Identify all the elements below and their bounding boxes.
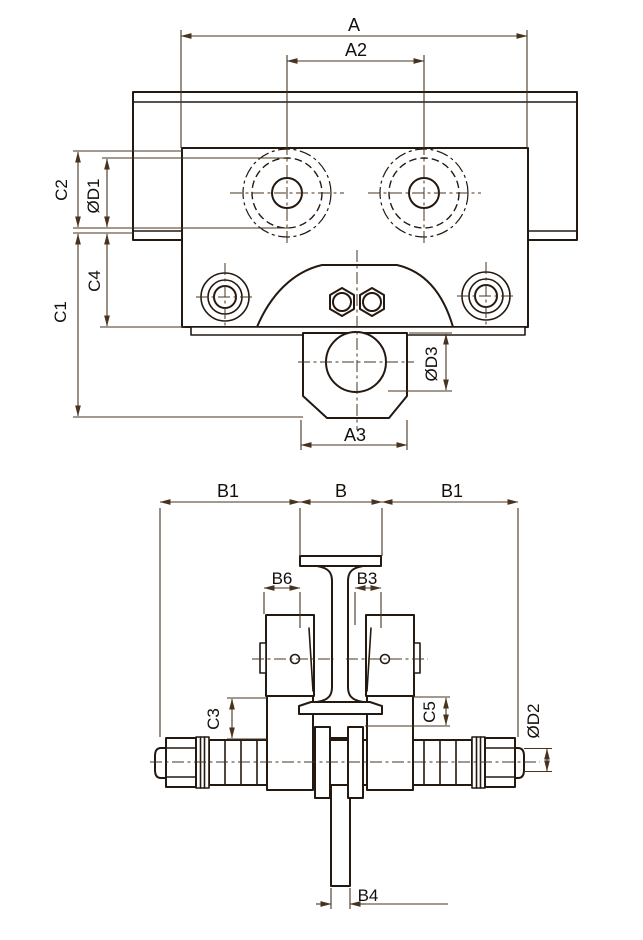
dim-label-C2: C2 — [52, 179, 71, 201]
suspension-bracket — [298, 332, 414, 418]
front-view: A A2 C2 ØD1 C4 C1 — [51, 15, 577, 450]
dim-label-B1-right: B1 — [441, 481, 463, 501]
dim-B4: B4 — [316, 886, 448, 909]
rod-end-cap-right — [515, 748, 524, 778]
shackle-hole — [326, 332, 386, 392]
dim-label-C4: C4 — [85, 270, 104, 292]
drawing-canvas: A A2 C2 ØD1 C4 C1 — [0, 0, 643, 940]
dim-label-A3: A3 — [344, 425, 366, 445]
dim-label-C1: C1 — [51, 301, 70, 323]
dim-label-A: A — [348, 15, 360, 35]
dim-label-D3: ØD3 — [422, 347, 441, 382]
hex-nut-left — [330, 288, 354, 316]
dim-C3: C3 — [204, 698, 267, 739]
dim-label-D2: ØD2 — [524, 704, 543, 739]
dim-label-B: B — [335, 481, 347, 501]
axle-boss-right — [414, 643, 420, 673]
ibeam-top-flange — [300, 556, 381, 566]
dim-label-B6: B6 — [272, 569, 293, 588]
technical-drawing: A A2 C2 ØD1 C4 C1 — [0, 0, 643, 940]
dim-label-B3: B3 — [357, 569, 378, 588]
wheel-right-side — [346, 615, 428, 696]
dim-label-A2: A2 — [345, 40, 367, 60]
dim-label-B4: B4 — [358, 886, 379, 905]
hex-nut-right — [360, 288, 384, 316]
dim-A3: A3 — [301, 420, 407, 450]
dim-label-C3: C3 — [204, 708, 223, 730]
dim-label-D1: ØD1 — [84, 179, 103, 214]
dim-D2: ØD2 — [524, 704, 552, 772]
ibeam-bottom-flange — [299, 702, 382, 714]
axle-boss-left — [260, 643, 266, 673]
side-view: B1 B B1 B6 B3 C3 C5 — [150, 481, 552, 909]
dim-label-C5: C5 — [420, 701, 439, 723]
wheel-left-side — [252, 615, 334, 696]
dim-C4: C4 — [73, 233, 185, 327]
dim-label-B1-left: B1 — [217, 481, 239, 501]
rod-end-cap-left — [155, 748, 166, 778]
